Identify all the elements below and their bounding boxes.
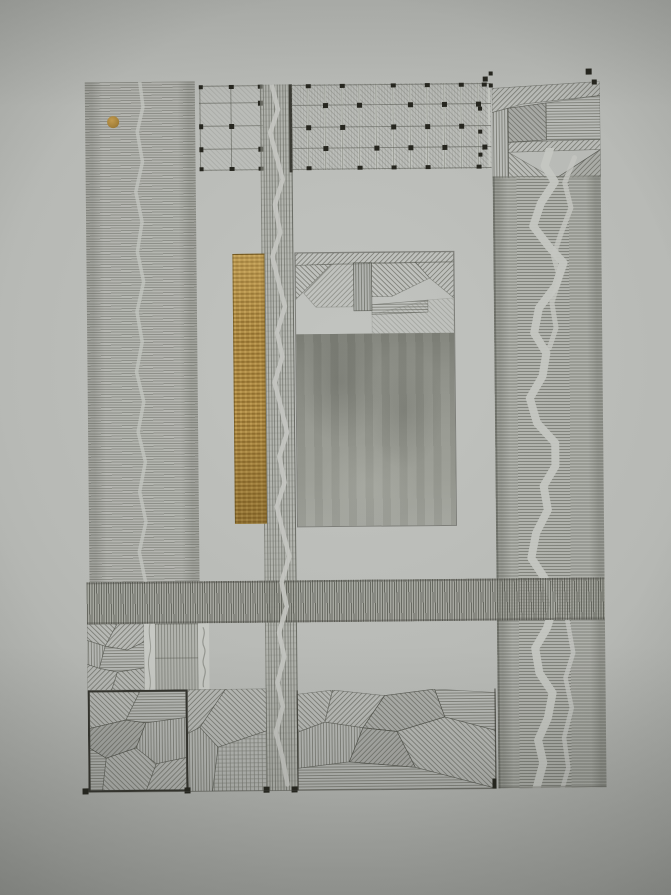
registration-marks — [0, 0, 671, 895]
drawing — [0, 0, 671, 895]
photo-paper-background — [0, 0, 671, 895]
